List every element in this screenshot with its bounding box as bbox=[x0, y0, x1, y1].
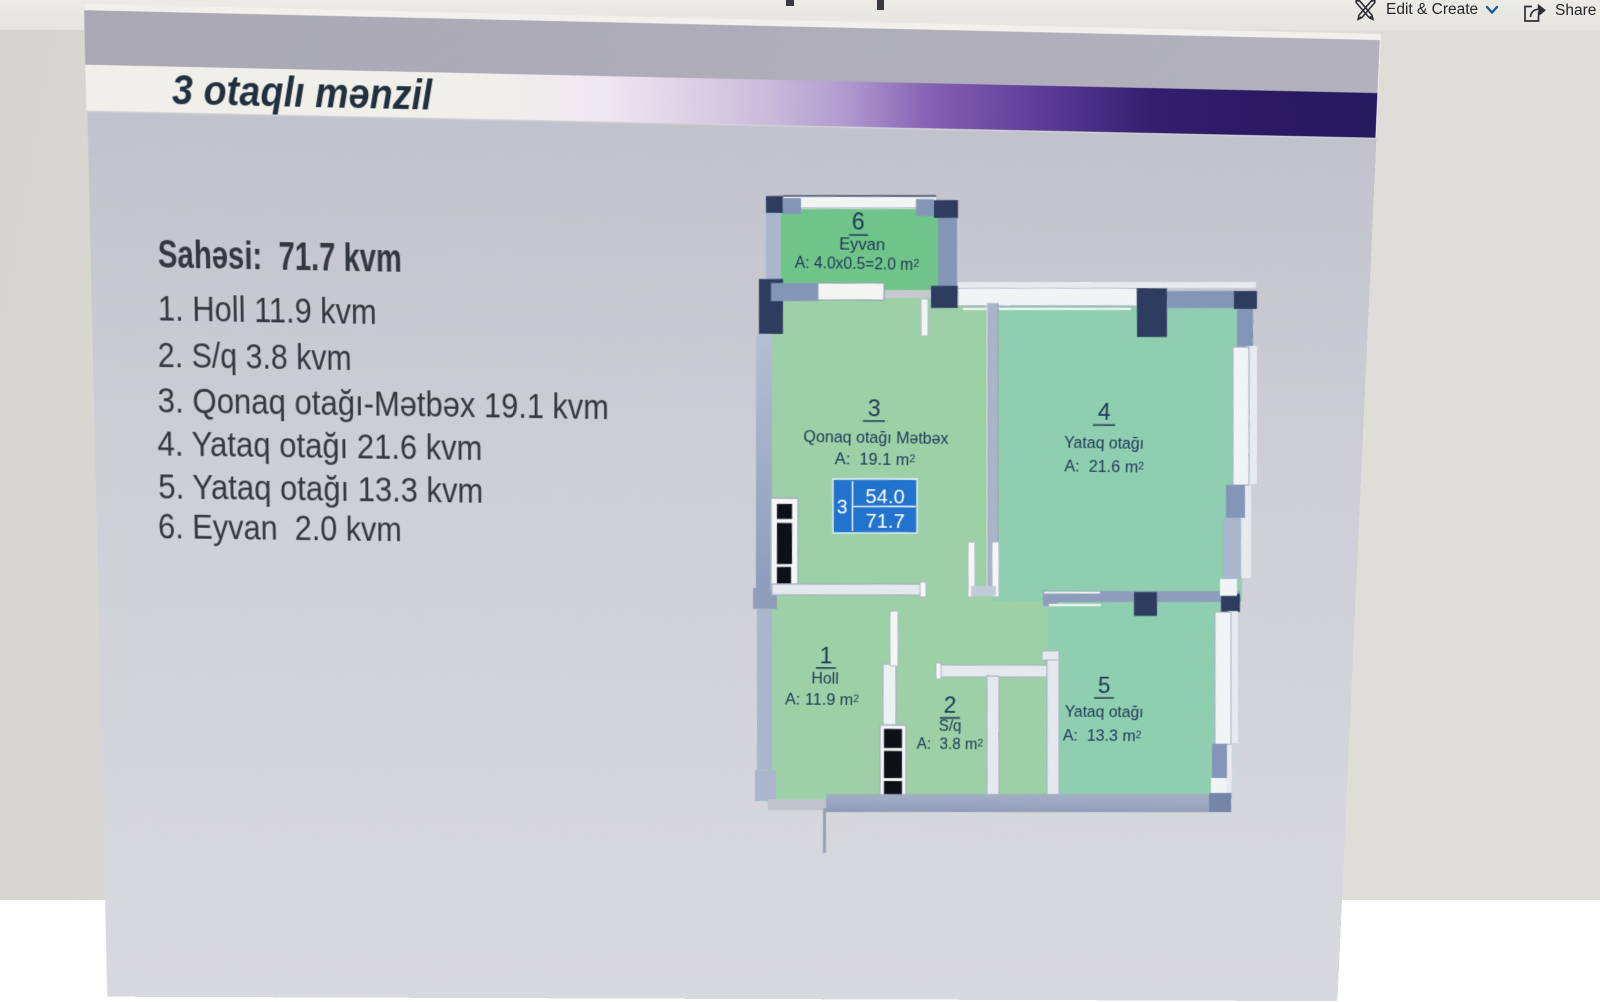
svg-text:A: 4.0x0.5=2.0 m2: A: 4.0x0.5=2.0 m2 bbox=[795, 253, 920, 274]
svg-text:A: 19.1 m2: A: 19.1 m2 bbox=[835, 449, 916, 469]
svg-text:54.0: 54.0 bbox=[865, 484, 905, 508]
svg-text:4: 4 bbox=[1097, 399, 1111, 426]
svg-text:5: 5 bbox=[1098, 673, 1111, 699]
svg-text:A: 21.6 m2: A: 21.6 m2 bbox=[1064, 456, 1144, 476]
svg-text:Eyvan: Eyvan bbox=[839, 234, 885, 254]
svg-text:Qonaq otağı Mətbəx: Qonaq otağı Mətbəx bbox=[803, 427, 949, 448]
svg-text:Yataq otağı: Yataq otağı bbox=[1064, 432, 1145, 452]
svg-text:S/q: S/q bbox=[939, 717, 962, 735]
svg-text:3: 3 bbox=[867, 395, 880, 422]
svg-text:1: 1 bbox=[820, 642, 833, 668]
svg-text:A: 11.9 m2: A: 11.9 m2 bbox=[785, 690, 859, 709]
svg-text:A: 3.8 m2: A: 3.8 m2 bbox=[917, 735, 984, 753]
svg-text:3: 3 bbox=[837, 497, 848, 519]
svg-text:Holl: Holl bbox=[811, 669, 839, 688]
svg-text:2: 2 bbox=[943, 693, 956, 719]
svg-text:A: 13.3 m2: A: 13.3 m2 bbox=[1063, 726, 1142, 745]
svg-text:6: 6 bbox=[851, 208, 865, 236]
svg-text:71.7: 71.7 bbox=[865, 509, 905, 533]
svg-text:Yataq otağı: Yataq otağı bbox=[1064, 702, 1143, 721]
